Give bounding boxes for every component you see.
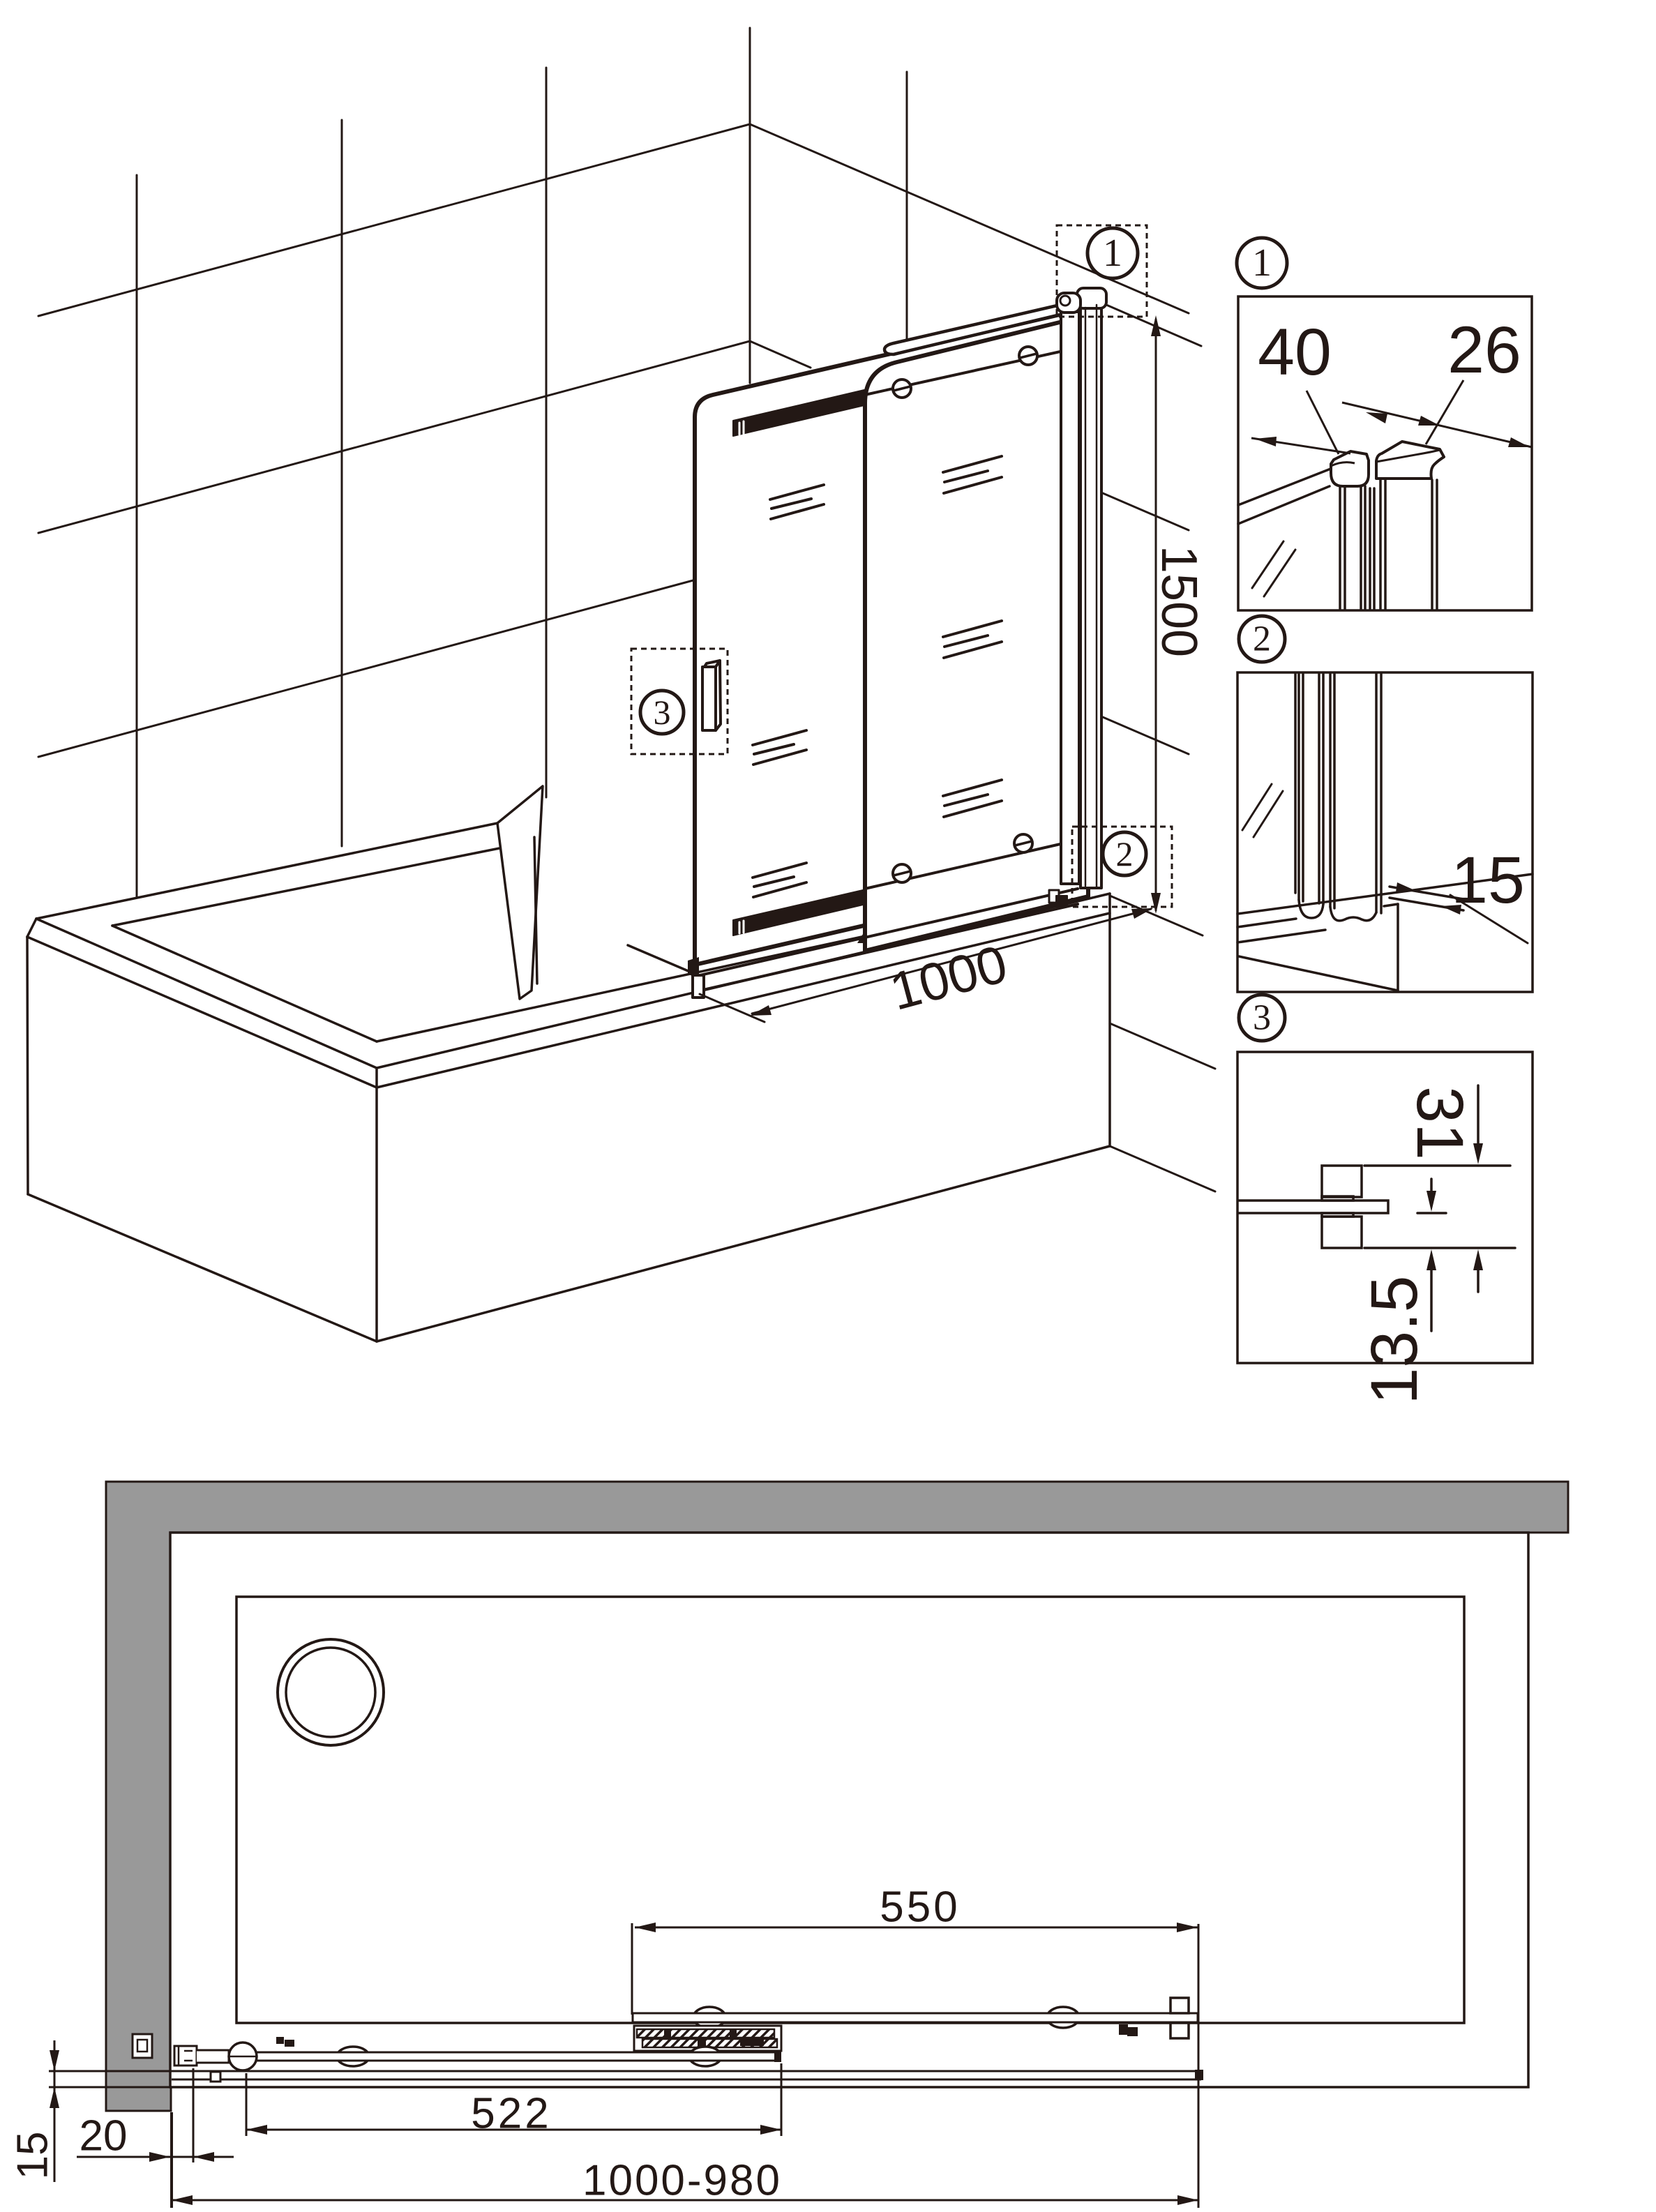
svg-text:1: 1 <box>1252 241 1272 285</box>
svg-text:20: 20 <box>80 2112 128 2160</box>
svg-text:40: 40 <box>1258 315 1332 389</box>
svg-text:1: 1 <box>1103 232 1122 275</box>
svg-text:15: 15 <box>1451 843 1525 917</box>
svg-text:1500: 1500 <box>1151 546 1207 657</box>
svg-text:2: 2 <box>1116 834 1134 873</box>
svg-text:31: 31 <box>1403 1086 1477 1160</box>
svg-text:3: 3 <box>1253 998 1271 1038</box>
svg-text:15: 15 <box>9 2132 57 2180</box>
svg-text:13.5: 13.5 <box>1357 1276 1431 1405</box>
svg-text:1000-980: 1000-980 <box>582 2157 782 2205</box>
svg-text:26: 26 <box>1447 313 1521 387</box>
svg-text:550: 550 <box>880 1883 960 1932</box>
svg-text:2: 2 <box>1253 619 1271 659</box>
svg-text:522: 522 <box>471 2090 551 2138</box>
svg-text:3: 3 <box>654 693 671 732</box>
